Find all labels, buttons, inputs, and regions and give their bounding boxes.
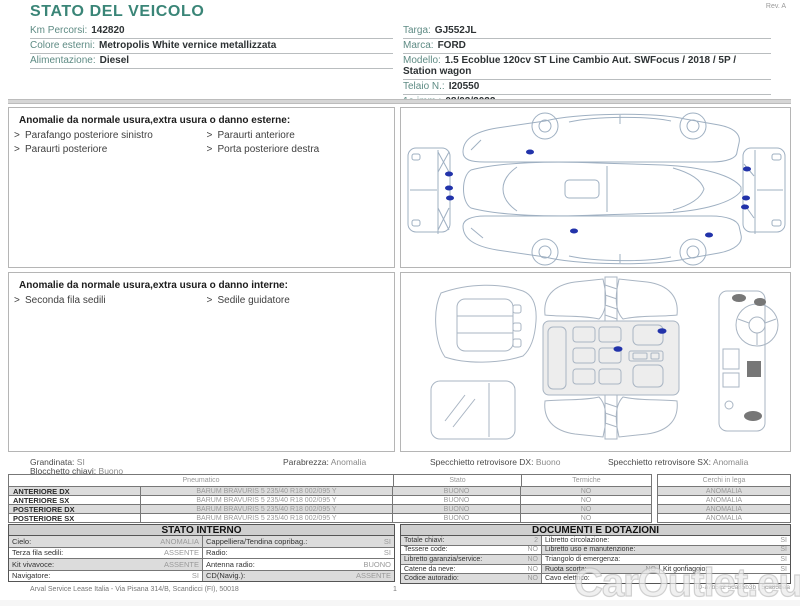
stato-interno-row: Terza fila sedili:ASSENTE Radio:SI (9, 547, 394, 559)
tyre-position: POSTERIORE DX (9, 505, 141, 513)
stato-interno-header: STATO INTERNO (8, 524, 395, 536)
cell-libretto-uso: Libretto uso e manutenzione:SI (541, 546, 790, 555)
rear-window-view (431, 381, 515, 439)
tyre-position: ANTERIORE SX (9, 496, 141, 504)
field-label: Alimentazione: (30, 55, 96, 66)
damage-marker (614, 346, 623, 352)
column-header-pneumatico: Pneumatico (9, 475, 394, 486)
tyre-row: POSTERIORE DX BARUM BRAVURIS 5 235/40 R1… (9, 504, 651, 513)
summary-parabrezza: Parabrezza: Anomalia (283, 457, 366, 467)
alloy-value: ANOMALIA (658, 487, 790, 495)
column-header-termiche: Termiche (522, 475, 651, 486)
field-value: I20550 (449, 81, 480, 92)
documenti-row: Catene da neve:NO Ruota scorta:NO Kit go… (401, 564, 790, 574)
alloy-row: ANOMALIA (658, 486, 790, 495)
interior-diagram-panel (400, 272, 791, 452)
cell-catene-neve: Catene da neve:NO (401, 565, 541, 574)
damage-marker (570, 229, 578, 234)
cell-totale-chiavi: Totale chiavi:2 (401, 536, 541, 545)
tyre-termiche: NO (521, 496, 651, 504)
field-label: Km Percorsi: (30, 25, 87, 36)
field-value: FORD (438, 40, 466, 51)
anomaly-item: Paraurti anteriore (202, 129, 395, 143)
cell-cielo: Cielo:ANOMALIA (9, 536, 202, 547)
alloy-row: ANOMALIA (658, 495, 790, 504)
anomaly-item: Sedile guidatore (202, 294, 395, 308)
alloy-wheels-table: Cerchi in lega ANOMALIA ANOMALIA ANOMALI… (657, 474, 791, 523)
exterior-anomalies-panel: Anomalie da normale usura,extra usura o … (8, 107, 395, 268)
cell-triangolo: Triangolo di emergenza:SI (541, 555, 790, 564)
dashboard-view (719, 291, 778, 431)
column-header-cerchi: Cerchi in lega (658, 475, 790, 486)
field-label: Telaio N.: (403, 81, 445, 92)
footer-page-number: 1 (393, 586, 397, 593)
alloy-row: ANOMALIA (658, 513, 790, 522)
tyre-position: ANTERIORE DX (9, 487, 141, 495)
vehicle-fields-right: Targa:GJ552JL Marca:FORD Modello:1.5 Eco… (403, 24, 771, 110)
cell-antenna-radio: Antenna radio:BUONO (202, 559, 394, 570)
trunk-view (436, 285, 537, 362)
documenti-row: Tessere code:NO Libretto uso e manutenzi… (401, 545, 790, 555)
documenti-header: DOCUMENTI E DOTAZIONI (400, 524, 791, 536)
field-marca: Marca:FORD (403, 39, 771, 54)
vehicle-fields-left: Km Percorsi:142820 Colore esterni:Metrop… (30, 24, 393, 69)
alloy-value: ANOMALIA (658, 505, 790, 513)
cell-kit-vivavoce: Kit vivavoce:ASSENTE (9, 559, 202, 570)
field-alimentazione: Alimentazione:Diesel (30, 54, 393, 69)
stato-interno-row: Kit vivavoce:ASSENTE Antenna radio:BUONO (9, 558, 394, 570)
field-label: Marca: (403, 40, 434, 51)
tyre-table-header: Pneumatico Stato Termiche (9, 475, 651, 486)
cell-codice-autoradio: Codice autoradio:NO (401, 574, 541, 583)
tyre-tables: Pneumatico Stato Termiche ANTERIORE DX B… (8, 474, 791, 523)
tyre-stato: BUONO (393, 487, 521, 495)
tyre-table: Pneumatico Stato Termiche ANTERIORE DX B… (8, 474, 652, 523)
car-side-top-view (463, 113, 739, 162)
car-plan-view (464, 162, 742, 216)
damage-marker (705, 233, 713, 238)
exterior-diagram-panel (400, 107, 791, 268)
tyre-spec: BARUM BRAVURIS 5 235/40 R18 002/095 Y (141, 514, 393, 522)
summary-specchietto-sx: Specchietto retrovisore SX: Anomalia (608, 457, 748, 467)
anomaly-item: Seconda fila sedili (9, 294, 202, 308)
tyre-spec: BARUM BRAVURIS 5 235/40 R18 002/095 Y (141, 487, 393, 495)
tyre-row: ANTERIORE DX BARUM BRAVURIS 5 235/40 R18… (9, 486, 651, 495)
field-modello: Modello:1.5 Ecoblue 120cv ST Line Cambio… (403, 54, 771, 80)
cell-cavo-elettrico: Cavo elettrico: (541, 574, 790, 583)
field-value: 1.5 Ecoblue 120cv ST Line Cambio Aut. SW… (403, 55, 736, 77)
documenti-row: Libretto garanzia/service:NO Triangolo d… (401, 554, 790, 564)
tyre-spec: BARUM BRAVURIS 5 235/40 R18 002/095 Y (141, 505, 393, 513)
documenti-row: Codice autoradio:NO Cavo elettrico: (401, 573, 790, 583)
anomaly-item: Paraurti posteriore (9, 143, 202, 157)
cabin-plan-view (543, 277, 679, 439)
alloy-row: ANOMALIA (658, 504, 790, 513)
cell-terza-fila: Terza fila sedili:ASSENTE (9, 548, 202, 559)
tyre-spec: BARUM BRAVURIS 5 235/40 R18 002/095 Y (141, 496, 393, 504)
car-front-view (408, 148, 450, 234)
anomaly-item: Porta posteriore destra (202, 143, 395, 157)
stato-interno-row: Cielo:ANOMALIA Cappelliera/Tendina copri… (9, 536, 394, 547)
field-targa: Targa:GJ552JL (403, 24, 771, 39)
field-label: Targa: (403, 25, 431, 36)
tyre-stato: BUONO (393, 496, 521, 504)
damage-marker (446, 196, 454, 201)
interior-anomalies-title: Anomalie da normale usura,extra usura o … (9, 273, 394, 294)
cell-radio: Radio:SI (202, 548, 394, 559)
tyre-termiche: NO (521, 505, 651, 513)
alloy-value: ANOMALIA (658, 514, 790, 522)
field-label: Modello: (403, 55, 441, 66)
footer-company: Arval Service Lease Italia - Via Pisana … (30, 586, 239, 593)
damage-marker (658, 328, 667, 334)
documenti-section: DOCUMENTI E DOTAZIONI Totale chiavi:2 Li… (400, 524, 791, 584)
anomaly-item: Parafango posteriore sinistro (9, 129, 202, 143)
stato-interno-row: Navigatore:SI CD(Navig.):ASSENTE (9, 570, 394, 582)
report-title: STATO DEL VEICOLO (30, 3, 204, 21)
field-value: Diesel (100, 55, 129, 66)
cell-libretto-circolazione: Libretto circolazione:SI (541, 536, 790, 545)
damage-marker (741, 205, 749, 210)
cell-cappelliera: Cappelliera/Tendina copribag.:SI (202, 536, 394, 547)
tyre-termiche: NO (521, 487, 651, 495)
car-interior-diagram (401, 273, 790, 451)
cell-tessere-code: Tessere code:NO (401, 546, 541, 555)
damage-marker (742, 196, 750, 201)
damage-marker (743, 167, 751, 172)
stato-interno-section: STATO INTERNO Cielo:ANOMALIA Cappelliera… (8, 524, 395, 582)
footer-document-id: ID-a7b5c2 5ca85b3b | 5ca85baa (696, 584, 790, 591)
column-header-stato: Stato (394, 475, 522, 486)
tyre-row: ANTERIORE SX BARUM BRAVURIS 5 235/40 R18… (9, 495, 651, 504)
vehicle-condition-report: STATO DEL VEICOLO Rev. A Km Percorsi:142… (0, 0, 800, 600)
tyre-position: POSTERIORE SX (9, 514, 141, 522)
tyre-row: POSTERIORE SX BARUM BRAVURIS 5 235/40 R1… (9, 513, 651, 522)
car-exterior-diagram (401, 108, 790, 267)
damage-marker (445, 186, 453, 191)
car-side-bottom-view (463, 216, 741, 265)
cell-cd-navig: CD(Navig.):ASSENTE (202, 571, 394, 582)
documenti-row: Totale chiavi:2 Libretto circolazione:SI (401, 536, 790, 545)
tyre-stato: BUONO (393, 514, 521, 522)
field-value: Metropolis White vernice metallizzata (99, 40, 276, 51)
summary-specchietto-dx: Specchietto retrovisore DX: Buono (430, 457, 560, 467)
alloy-value: ANOMALIA (658, 496, 790, 504)
cell-kit-gonfiaggio: Kit gonfiaggio:SI (659, 565, 790, 574)
field-label: Colore esterni: (30, 40, 95, 51)
car-rear-view (743, 148, 785, 234)
field-colore: Colore esterni:Metropolis White vernice … (30, 39, 393, 54)
damage-marker (445, 172, 453, 177)
tyre-termiche: NO (521, 514, 651, 522)
damage-marker (526, 150, 534, 155)
separator-bar (8, 99, 791, 104)
revision-label: Rev. A (766, 3, 786, 10)
cell-navigatore: Navigatore:SI (9, 571, 202, 582)
interior-anomalies-panel: Anomalie da normale usura,extra usura o … (8, 272, 395, 452)
field-km: Km Percorsi:142820 (30, 24, 393, 39)
cell-libretto-garanzia: Libretto garanzia/service:NO (401, 555, 541, 564)
field-value: GJ552JL (435, 25, 477, 36)
exterior-anomalies-title: Anomalie da normale usura,extra usura o … (9, 108, 394, 129)
tyre-stato: BUONO (393, 505, 521, 513)
field-value: 142820 (91, 25, 124, 36)
alloy-table-header: Cerchi in lega (658, 475, 790, 486)
field-telaio: Telaio N.:I20550 (403, 80, 771, 95)
cell-ruota-scorta: Ruota scorta:NO (541, 565, 659, 574)
